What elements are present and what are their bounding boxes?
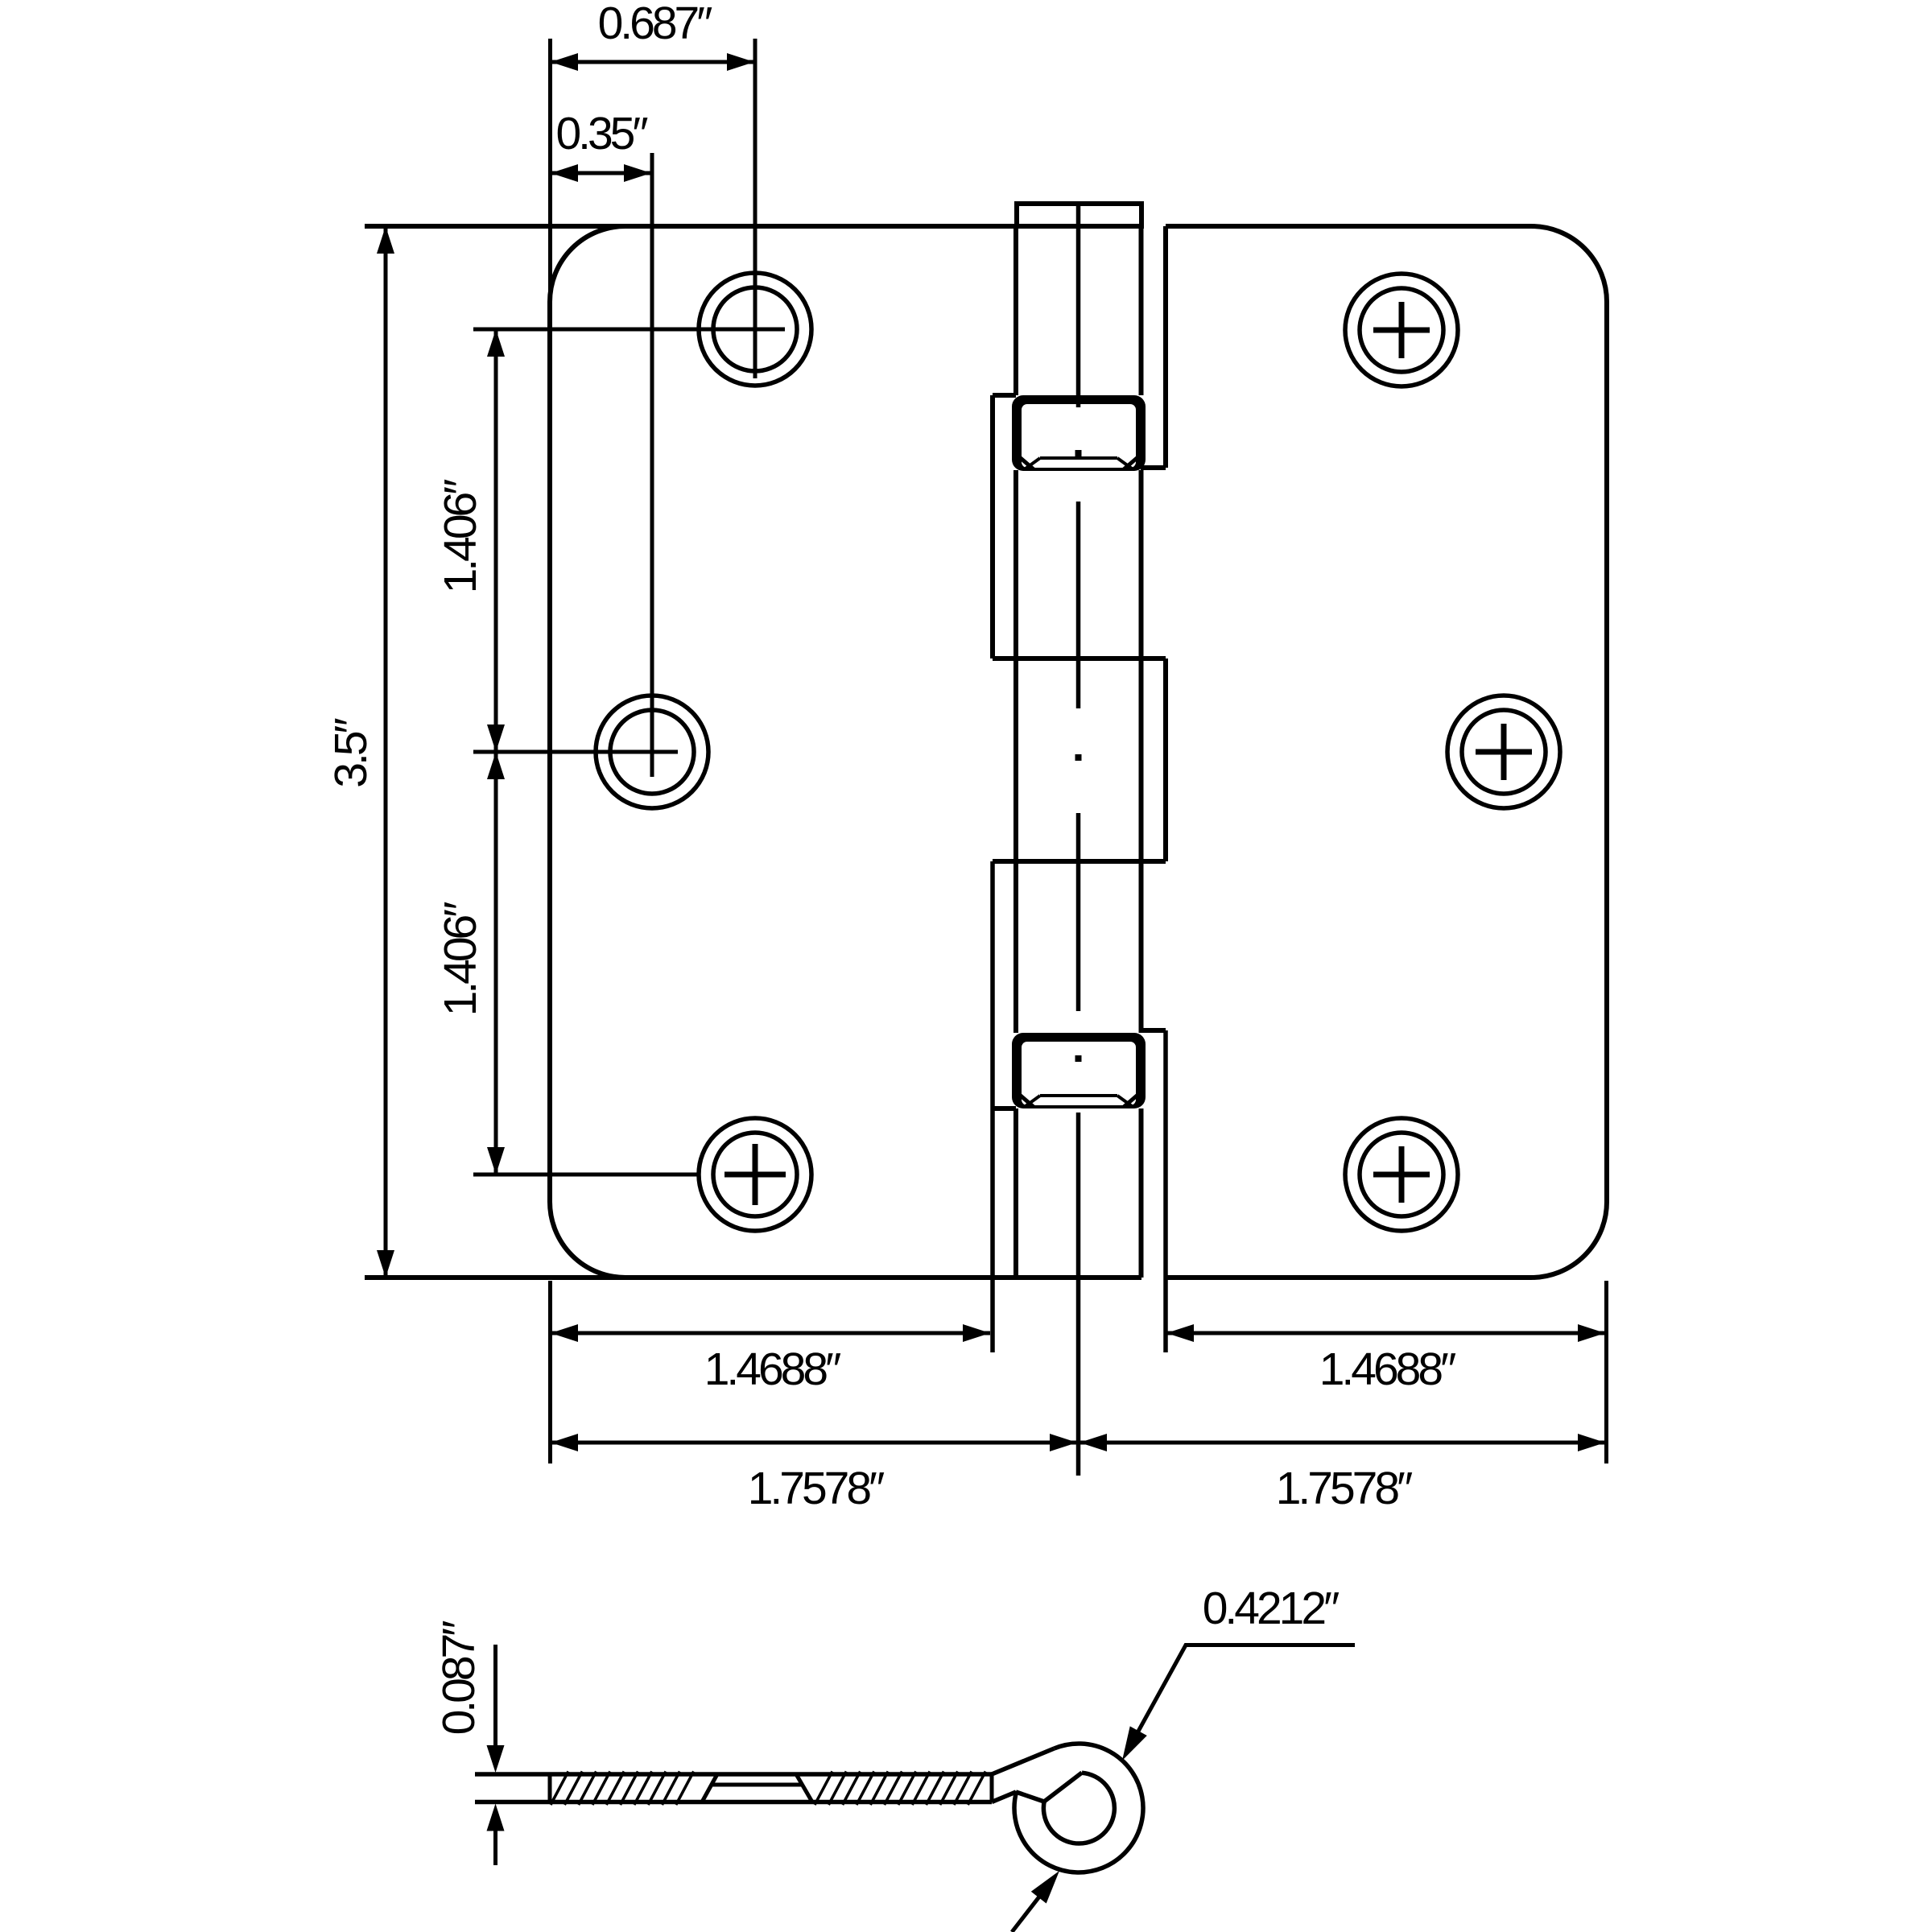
svg-text:1.7578″: 1.7578″ — [748, 1463, 885, 1514]
svg-text:3.5″: 3.5″ — [325, 717, 377, 787]
svg-text:0.35″: 0.35″ — [555, 108, 648, 159]
svg-text:1.4688″: 1.4688″ — [1319, 1344, 1456, 1395]
svg-text:0.687″: 0.687″ — [598, 0, 713, 49]
svg-text:1.7578″: 1.7578″ — [1276, 1463, 1413, 1514]
svg-text:1.406″: 1.406″ — [435, 902, 486, 1017]
svg-text:1.4688″: 1.4688″ — [704, 1344, 841, 1395]
svg-text:0.4212″: 0.4212″ — [1203, 1583, 1340, 1634]
svg-text:1.406″: 1.406″ — [435, 479, 486, 594]
svg-text:0.087″: 0.087″ — [433, 1620, 485, 1736]
